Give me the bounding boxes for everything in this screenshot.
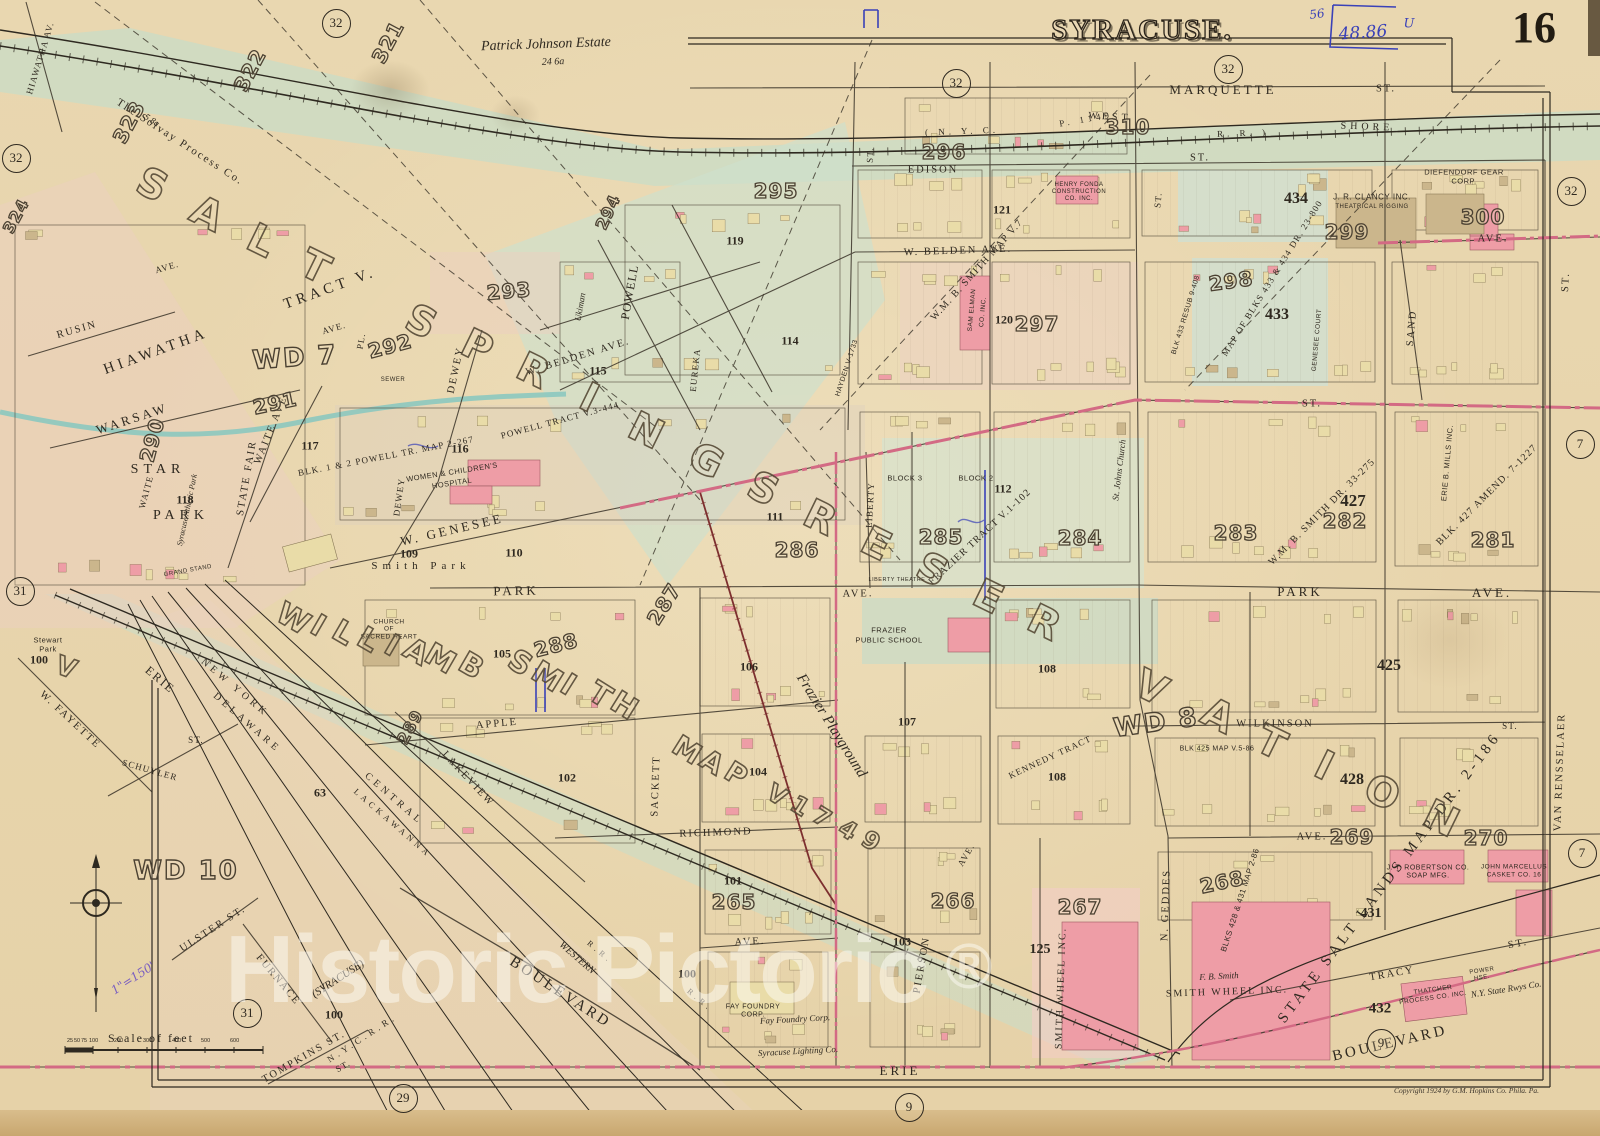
map-label: PARK <box>1277 584 1322 600</box>
block-number: 282 <box>1323 509 1368 533</box>
adjacent-plate-ref: 29 <box>389 1084 418 1113</box>
map-artwork <box>0 0 1600 1136</box>
map-label: ST. <box>1152 192 1163 208</box>
adjacent-plate-ref: 32 <box>1214 55 1243 84</box>
map-label: J. R. CLANCY INC. <box>1333 193 1411 202</box>
handwritten-annotation: 48.86 <box>1338 21 1388 44</box>
plate-number: 16 <box>1512 2 1556 53</box>
block-number: 310 <box>1106 115 1151 139</box>
parcel-number: 106 <box>740 660 758 675</box>
map-label: F. B. Smith <box>1199 970 1239 982</box>
parcel-number: 108 <box>1048 770 1066 785</box>
block-number: 286 <box>775 538 820 562</box>
parcel-number: 107 <box>898 715 916 730</box>
block-number: 266 <box>931 889 976 913</box>
map-label: CASKET CO. 16 <box>1487 872 1542 879</box>
photo-edge <box>1588 0 1600 56</box>
adjacent-plate-ref: 9 <box>895 1093 924 1122</box>
map-label: JOHN MARCELLUS <box>1481 864 1547 871</box>
map-label: SHORE <box>1340 121 1393 134</box>
parcel-number: 433 <box>1265 306 1289 324</box>
map-label: ERIE <box>880 1063 921 1079</box>
scale-tick-label: 75 <box>81 1038 87 1044</box>
map-label: ST. <box>188 735 204 745</box>
map-label: EDISON <box>908 165 959 176</box>
scale-tick-label: 300 <box>143 1038 152 1044</box>
map-label: ST. <box>1502 721 1518 731</box>
scale-tick-label: 500 <box>201 1038 210 1044</box>
block-number: 270 <box>1464 826 1509 850</box>
map-label: CORP. <box>1451 177 1476 186</box>
map-label: ST. <box>1302 399 1322 410</box>
parcel-number: 432 <box>1369 1001 1392 1018</box>
parcel-number: 103 <box>893 935 911 950</box>
map-label: MARQUETTE <box>1169 82 1276 98</box>
map-label: R. R. ) <box>1217 127 1269 139</box>
map-label: AVE. <box>842 588 873 600</box>
scale-tick-label: 100 <box>89 1038 98 1044</box>
copyright-line: Copyright 1924 by G.M. Hopkins Co. Phila… <box>1394 1086 1539 1095</box>
parcel-number: 119 <box>726 234 743 249</box>
block-number: 299 <box>1325 220 1370 244</box>
parcel-number: 434 <box>1284 190 1308 208</box>
map-label: PARK <box>493 583 539 600</box>
parcel-number: 100 <box>325 1008 343 1023</box>
map-label: AVE. <box>1297 832 1328 843</box>
parcel-number: 118 <box>176 493 193 508</box>
parcel-number: 63 <box>314 786 326 801</box>
adjacent-plate-ref: 31 <box>233 999 262 1028</box>
block-number: 295 <box>754 179 799 203</box>
adjacent-plate-ref: 9 <box>1367 1029 1396 1058</box>
map-label: ST. <box>1376 84 1396 95</box>
block-number: 293 <box>486 277 533 305</box>
parcel-number: 121 <box>993 203 1011 218</box>
parcel-number: 100 <box>678 967 696 982</box>
map-label: THEATRICAL RIGGING <box>1335 204 1408 210</box>
map-label: CHURCH <box>373 619 404 626</box>
map-label: 24 6a <box>542 56 565 68</box>
map-label: SOAP MFG. <box>1406 873 1449 880</box>
map-label: FRAZIER <box>871 626 907 635</box>
parcel-number: 114 <box>781 334 798 349</box>
map-title: SYRACUSE. <box>1042 14 1242 47</box>
block-number: 269 <box>1330 825 1375 849</box>
scale-tick-label: 400 <box>172 1038 181 1044</box>
parcel-number: 125 <box>1030 942 1051 958</box>
paper-edge <box>0 1110 1600 1136</box>
block-number: 265 <box>712 890 757 914</box>
adjacent-plate-ref: 32 <box>1557 177 1586 206</box>
parcel-number: 428 <box>1340 771 1364 789</box>
map-label: SEWER <box>381 377 406 383</box>
handwritten-annotation: U <box>1404 17 1415 32</box>
scale-tick-label: 50 <box>74 1038 80 1044</box>
map-label: SACKETT <box>649 755 662 817</box>
scale-tick-label: 25 <box>67 1038 73 1044</box>
map-label: CO. INC. <box>1065 196 1093 202</box>
parcel-number: 101 <box>724 874 742 889</box>
map-label: ST. <box>1190 153 1210 164</box>
map-label: CONSTRUCTION <box>1052 189 1106 195</box>
parcel-number: 110 <box>505 546 522 561</box>
block-number: 297 <box>1015 312 1060 336</box>
map-label: AVE. <box>1472 585 1512 601</box>
map-label: Stewart <box>34 636 63 645</box>
map-label: PUBLIC SCHOOL <box>855 636 922 645</box>
parcel-number: 427 <box>1340 491 1366 511</box>
adjacent-plate-ref: 32 <box>322 9 351 38</box>
block-number: 285 <box>919 525 964 549</box>
parcel-number: 117 <box>301 439 318 454</box>
block-number: 267 <box>1058 895 1103 919</box>
adjacent-plate-ref: 7 <box>1566 430 1595 459</box>
parcel-number: 108 <box>1038 662 1056 677</box>
map-label: Smith Park <box>371 560 470 572</box>
block-number: 284 <box>1058 526 1103 550</box>
adjacent-plate-ref: 31 <box>6 577 35 606</box>
map-label: ST. <box>1560 272 1572 293</box>
adjacent-plate-ref: 32 <box>2 144 31 173</box>
block-number: 283 <box>1214 521 1259 545</box>
block-number: 296 <box>922 140 967 164</box>
map-label: AVE. <box>1478 234 1509 245</box>
map-label: STAR <box>131 462 186 478</box>
parcel-number: 425 <box>1377 657 1401 675</box>
parcel-number: 112 <box>994 482 1011 497</box>
map-label: DIEFENDORF GEAR <box>1424 168 1504 177</box>
map-label: FAY FOUNDRY <box>726 1004 781 1011</box>
handwritten-annotation: 56 <box>1308 6 1325 22</box>
map-label: HENRY FONDA <box>1055 182 1104 188</box>
scale-tick-label: 200 <box>114 1038 123 1044</box>
parcel-number: 111 <box>767 510 784 525</box>
scale-tick-label: 600 <box>230 1038 239 1044</box>
adjacent-plate-ref: 7 <box>1568 839 1597 868</box>
map-page: SYRACUSE. 16 MARQUETTEST.EDISONST.W. BEL… <box>0 0 1600 1136</box>
ward-label: WD 7 <box>251 340 338 376</box>
parcel-number: 116 <box>451 442 468 457</box>
map-label: ST. <box>865 147 876 163</box>
block-number: 300 <box>1461 205 1506 229</box>
parcel-number: 431 <box>1361 906 1382 922</box>
ward-label: WD 10 <box>133 856 239 886</box>
map-label: AVE. <box>734 936 765 949</box>
block-number: 281 <box>1471 528 1516 552</box>
map-label: BLOCK 3 <box>887 474 922 483</box>
parcel-number: 109 <box>400 547 418 562</box>
map-label: BLOCK 2 <box>958 474 993 483</box>
adjacent-plate-ref: 32 <box>942 69 971 98</box>
parcel-number: 120 <box>995 313 1013 328</box>
parcel-number: 100 <box>30 653 48 668</box>
parcel-number: 102 <box>558 771 576 786</box>
map-label: BLK 425 MAP V.5-86 <box>1180 746 1255 753</box>
